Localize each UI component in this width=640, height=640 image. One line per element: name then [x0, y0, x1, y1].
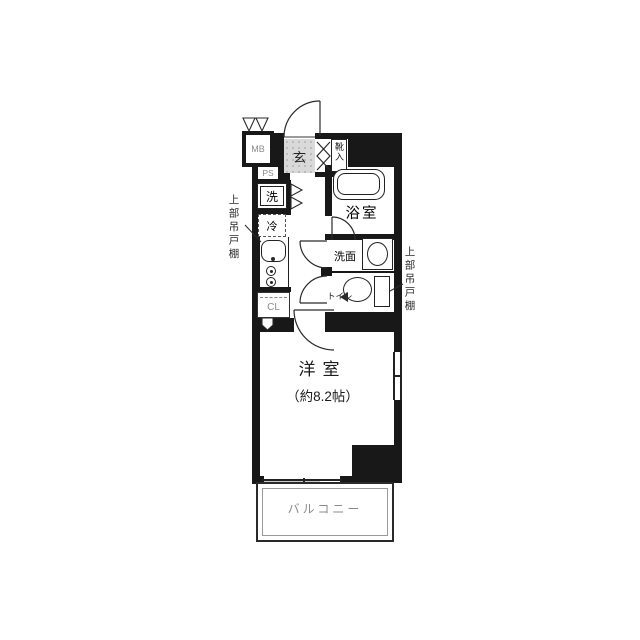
kitchen-sink — [261, 240, 286, 262]
floor-plan: MB PS 玄 靴入 洗 冷 CL 浴室 — [0, 0, 640, 640]
washroom-sink-unit — [362, 238, 393, 270]
balcony-label: バルコニー — [288, 500, 363, 517]
entrance-door-arc — [284, 101, 320, 137]
washer-box: 洗 — [260, 186, 284, 206]
pillar — [352, 445, 402, 483]
main-room-label: 洋室 — [250, 355, 395, 380]
toilet-upper-cupboard-box — [374, 276, 390, 307]
shoe-storage-box: 靴入 — [331, 139, 347, 172]
pipe-space: PS — [258, 167, 278, 179]
washer-box-outer: 洗 — [257, 183, 287, 209]
fridge-label: 冷 — [267, 218, 278, 234]
closet-box: CL — [257, 292, 290, 318]
door-swing-overlay — [0, 0, 640, 640]
bathtub — [333, 169, 385, 200]
shoe-storage-label: 靴入 — [334, 142, 343, 162]
washroom-door-arc — [300, 241, 327, 268]
pipe-space-label: PS — [262, 168, 273, 178]
toilet-label: トイレ — [327, 292, 353, 301]
washer-door-icon — [291, 184, 302, 196]
washer-door-icon-2 — [291, 197, 302, 209]
balcony-label-wrap: バルコニー — [258, 498, 392, 518]
closet-label-wrap: CL — [258, 299, 289, 315]
bathtub-inner — [337, 173, 380, 195]
entrance-label: 玄 — [293, 147, 306, 166]
upper-cupboard-right-label: 上部吊戸棚 — [404, 246, 415, 314]
bathroom-label-wrap: 浴室 — [330, 203, 394, 221]
washroom-label: 洗面 — [334, 248, 356, 264]
meter-box-door-icon-2 — [256, 118, 268, 131]
upper-cupboard-left-label: 上部吊戸棚 — [228, 194, 239, 262]
side-window-tick — [393, 375, 402, 377]
entrance-area: 玄 — [284, 139, 315, 173]
kitchen-counter-edge — [288, 237, 289, 288]
wall-block-top-right — [348, 133, 402, 167]
wall-column-bottom — [252, 318, 294, 332]
washroom-sink-bowl — [367, 242, 388, 266]
stove-burner-2-dot — [270, 281, 273, 284]
washroom-label-wrap: 洗面 — [326, 249, 364, 262]
washer-label: 洗 — [266, 188, 278, 205]
meter-box-label: MB — [251, 144, 265, 154]
fridge-box: 冷 — [258, 214, 286, 237]
toilet-door-arc — [300, 276, 327, 303]
closet-label: CL — [267, 302, 280, 313]
main-room-size: （約8.2帖） — [250, 385, 395, 405]
wall-door-hinge-block — [321, 267, 332, 276]
toilet-label-wrap: トイレ — [327, 292, 359, 303]
wall-washroom-toilet-divider — [332, 271, 394, 273]
meter-box: MB — [246, 135, 270, 163]
main-room: 洋室 （約8.2帖） — [250, 355, 395, 407]
wall-toilet-bottom — [325, 312, 402, 332]
bathroom-label: 浴室 — [346, 202, 379, 223]
meter-box-door-icon — [243, 118, 255, 131]
balcony: バルコニー — [256, 482, 394, 542]
entrance-threshold — [284, 136, 315, 138]
closet-hanger-rod — [260, 297, 287, 298]
wall-right-mid — [394, 400, 402, 445]
stove-burner-1-dot — [270, 270, 273, 273]
